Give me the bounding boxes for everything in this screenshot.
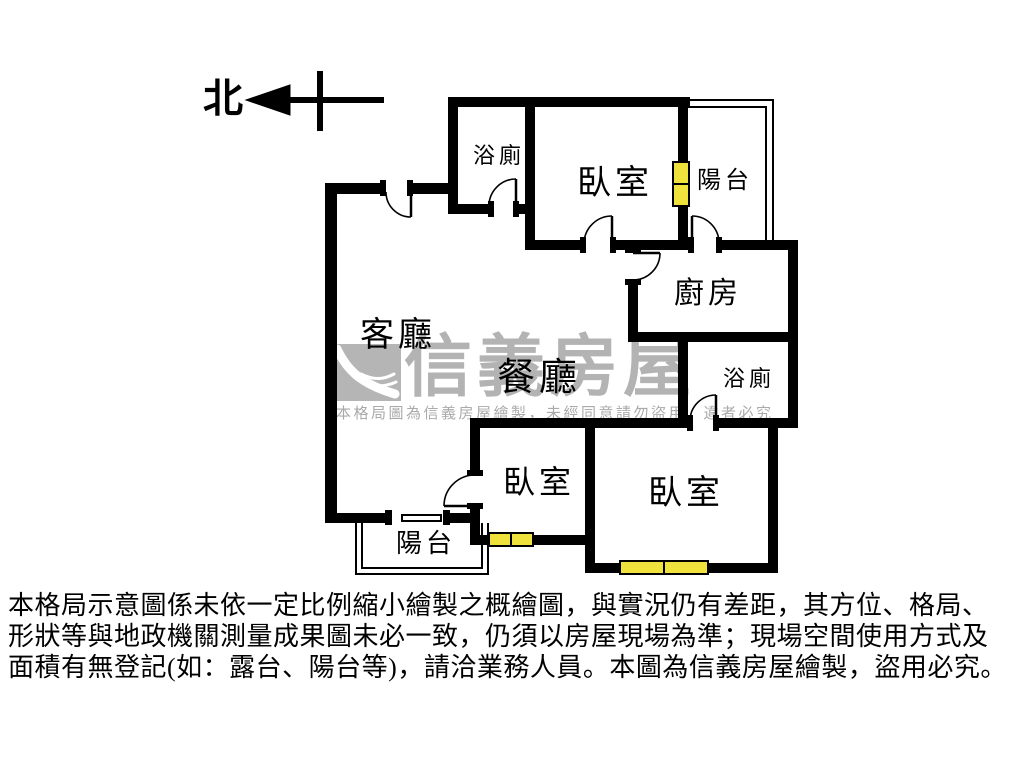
room-label-balcony-top: 陽台 — [697, 169, 753, 193]
disclaimer-line-1: 本格局示意圖係未依一定比例縮小繪製之概繪圖，與實況仍有差距，其方位、格局、 — [8, 590, 1018, 621]
door-jamb — [688, 237, 694, 253]
wall-segment — [325, 183, 337, 523]
wall-segment — [628, 282, 638, 342]
room-label-dining: 餐廳 — [497, 359, 581, 397]
room-label-bedroom-right: 臥室 — [648, 477, 724, 511]
room-label-living: 客廳 — [360, 319, 436, 353]
wall-segment — [718, 418, 798, 428]
wall-segment — [470, 418, 480, 474]
window — [619, 560, 709, 575]
disclaimer-line-2: 形狀等與地政機關測量成果圖未必一致，仍須以房屋現場為準；現場空間使用方式及 — [8, 621, 1018, 652]
door-jamb — [687, 415, 693, 431]
wall-segment — [585, 418, 595, 573]
window — [672, 161, 690, 207]
wall-segment — [448, 97, 690, 107]
sliding-door — [401, 514, 442, 522]
wall-segment — [525, 97, 535, 250]
door-jamb — [443, 510, 450, 525]
wall-segment — [448, 97, 458, 214]
door-jamb — [380, 180, 386, 196]
window — [488, 532, 534, 547]
door-jamb — [467, 470, 483, 476]
door-jamb — [513, 201, 519, 217]
wall-segment — [788, 240, 798, 428]
room-label-kitchen: 廚房 — [674, 279, 742, 309]
disclaimer-line-3: 面積有無登記(如：露台、陽台等)，請洽業務人員。本圖為信義房屋繪製，盜用必究。 — [8, 652, 1018, 683]
floorplan-canvas: 北 — [0, 0, 1024, 768]
door-jamb — [610, 237, 616, 253]
wall-segment — [628, 332, 798, 342]
door-jamb — [625, 279, 641, 285]
door-jamb — [580, 237, 586, 253]
room-label-bath-right: 浴廁 — [723, 368, 775, 390]
door-jamb — [488, 201, 494, 217]
disclaimer-text: 本格局示意圖係未依一定比例縮小繪製之概繪圖，與實況仍有差距，其方位、格局、 形狀… — [8, 590, 1018, 683]
north-label: 北 — [203, 79, 243, 119]
room-label-bedroom-mid: 臥室 — [503, 466, 575, 498]
room-label-balcony-bottom: 陽台 — [396, 531, 456, 557]
room-label-bedroom-top: 臥室 — [577, 167, 653, 201]
wall-segment — [768, 418, 778, 573]
door-jamb — [625, 247, 641, 253]
wall-segment — [470, 418, 688, 428]
door-jamb — [713, 415, 719, 431]
door-jamb — [407, 180, 413, 196]
door-jamb — [467, 503, 483, 509]
door-jamb — [716, 237, 722, 253]
room-label-bath-top: 浴廁 — [473, 145, 525, 167]
door-jamb — [385, 510, 392, 525]
